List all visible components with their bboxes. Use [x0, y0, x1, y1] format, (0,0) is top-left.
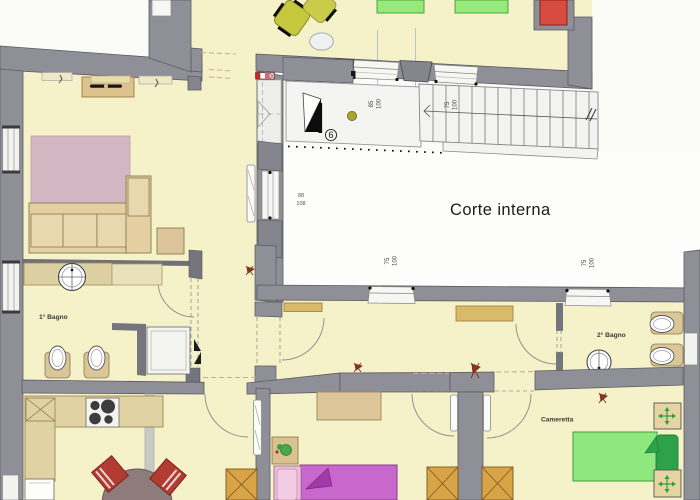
- svg-text:Corte interna: Corte interna: [450, 201, 551, 219]
- svg-text:100: 100: [377, 98, 383, 109]
- svg-text:Cameretta: Cameretta: [541, 417, 574, 424]
- svg-text:75: 75: [582, 259, 588, 266]
- svg-text:100: 100: [453, 99, 459, 110]
- svg-text:100: 100: [393, 255, 399, 266]
- svg-text:1° Bagno: 1° Bagno: [39, 313, 68, 321]
- svg-text:108: 108: [296, 201, 305, 207]
- svg-text:75: 75: [385, 257, 391, 264]
- svg-text:75: 75: [445, 101, 451, 108]
- svg-text:85: 85: [369, 100, 375, 107]
- svg-text:2° Bagno: 2° Bagno: [597, 331, 626, 339]
- svg-text:88: 88: [298, 193, 304, 199]
- svg-text:100: 100: [590, 257, 596, 268]
- svg-text:6: 6: [328, 130, 333, 140]
